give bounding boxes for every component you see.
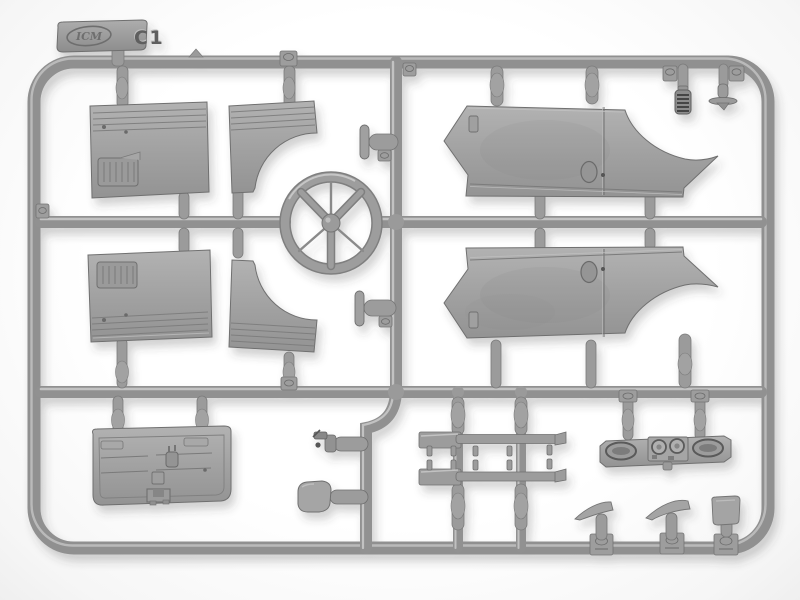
steering-wheel (285, 174, 377, 269)
photo-background: ICM C1 C1 (0, 0, 800, 600)
ribbed-cap-part (675, 86, 691, 114)
brand-tab: ICM C1 C1 (57, 20, 164, 52)
door-panel-lower (88, 250, 212, 342)
runner-nub (189, 49, 203, 57)
tailgate-panel (93, 426, 232, 505)
arch-panel-lower (229, 260, 317, 352)
rod-part-lower (419, 459, 566, 485)
plate-part (712, 496, 740, 537)
dashboard (600, 436, 731, 470)
latch-detail (469, 116, 478, 132)
disc-base-part (709, 84, 737, 110)
door-handle-recess (581, 262, 597, 283)
body-side-panel-lower (444, 247, 718, 338)
door-pull-pocket (97, 262, 137, 288)
latch-detail (469, 312, 478, 328)
door-panel-upper (90, 102, 209, 198)
mirror-part (298, 481, 368, 512)
body-side-panel-upper (444, 106, 718, 197)
door-handle-recess (581, 162, 597, 183)
sprue-photo: ICM C1 C1 (0, 0, 800, 600)
brand-logo-text: ICM (75, 30, 103, 43)
fitting-small-part (313, 430, 368, 452)
frame-label: C1 (134, 27, 164, 49)
rod-part-upper (419, 432, 566, 456)
